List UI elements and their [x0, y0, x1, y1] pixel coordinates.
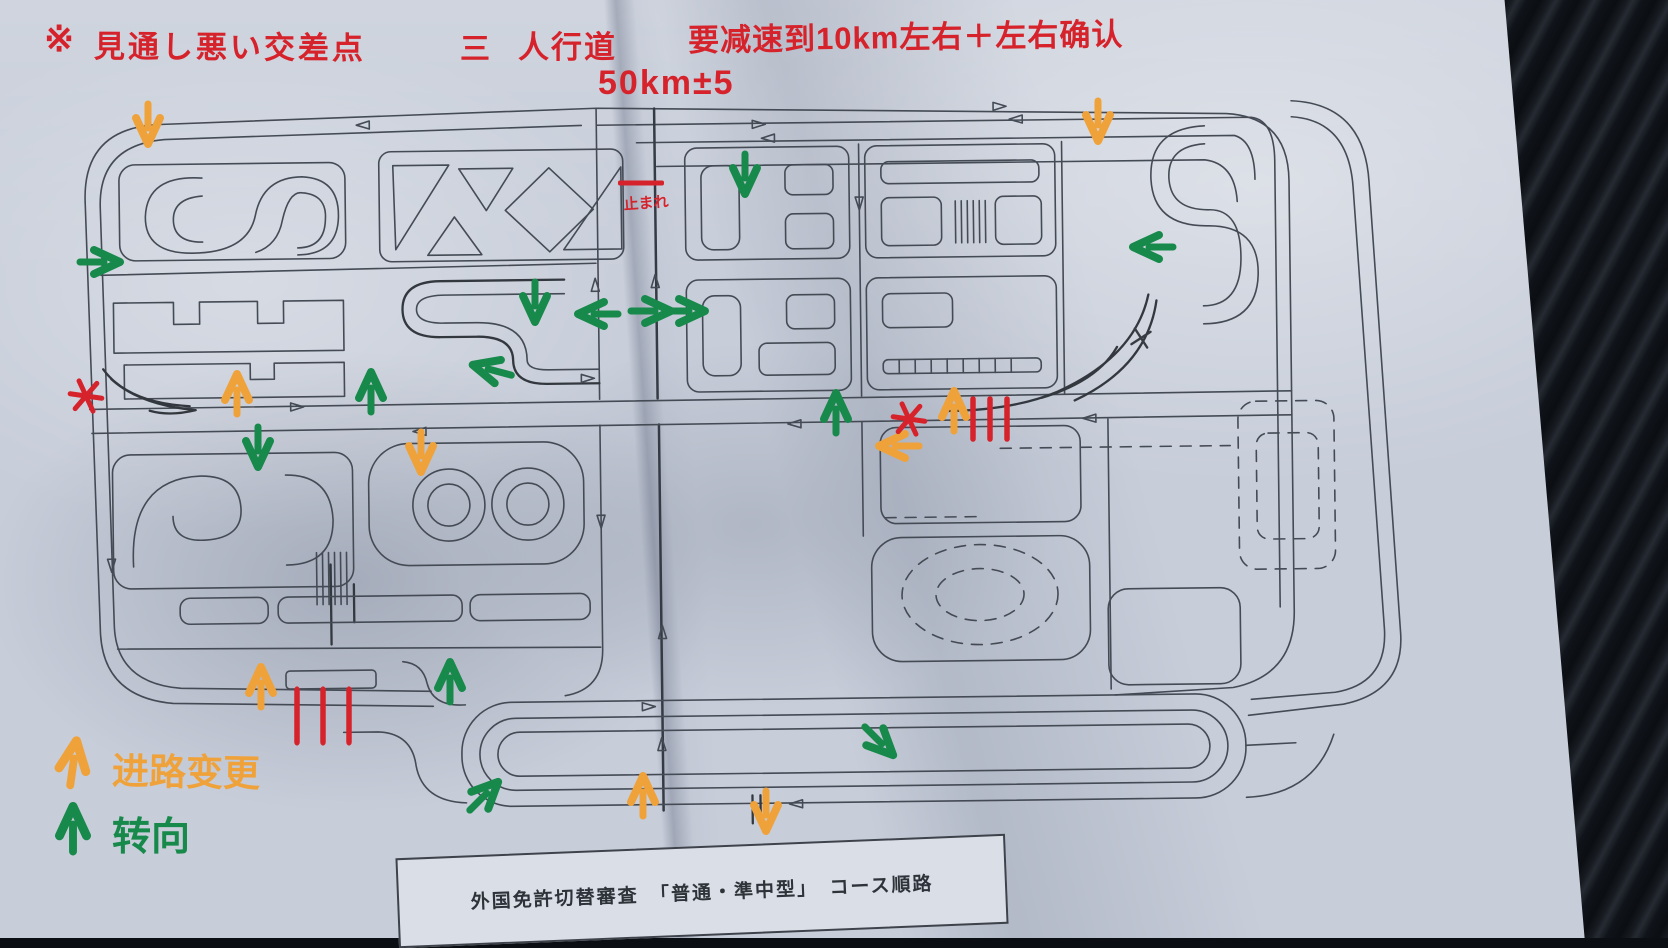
crosswalk-symbol: 三 [460, 24, 490, 68]
turn-arrow [733, 154, 757, 194]
lane-change-arrow [249, 667, 273, 707]
lane-change-arrow [631, 776, 655, 816]
turn-legend-label: 转向 [112, 806, 190, 862]
lane-change-arrow [409, 432, 433, 472]
speed-rule-note: 要减速到10km左右＋左右确认 [688, 9, 1124, 60]
turn-arrow [1133, 235, 1173, 259]
lane-change-arrow [1086, 101, 1110, 141]
blind-intersection-note: 見通し悪い交差点 [94, 21, 366, 68]
lane-change-arrow [136, 104, 160, 144]
course-map-photo: ※ 見通し悪い交差点 三 人行道 要减速到10km左右＋左右确认 50km±5 … [0, 0, 1668, 938]
turn-legend-icon [50, 802, 96, 861]
blind-intersection-symbol: ※ [44, 18, 74, 60]
turn-arrow [824, 393, 848, 433]
turn-arrow [523, 282, 547, 322]
turn-arrow [470, 353, 515, 387]
turn-arrow [359, 372, 383, 412]
turn-arrow [665, 299, 705, 323]
lane-change-arrow [225, 374, 249, 414]
annotation-markers [0, 0, 1668, 938]
lane-change-arrow [879, 434, 919, 458]
turn-arrow [80, 250, 120, 274]
crosswalk-note: 人行道 [518, 22, 617, 67]
speed-limit-note: 50km±5 [598, 64, 735, 103]
lane-change-arrow [754, 791, 778, 831]
blind-intersection-mark [891, 403, 927, 435]
turn-arrow [461, 773, 506, 818]
pen-cross-mark [1132, 329, 1151, 348]
course-title: 外国免許切替審査 「普通・準中型」 コース順路 [470, 868, 934, 914]
turn-arrow [578, 302, 618, 326]
lane-change-legend-icon [46, 733, 100, 798]
blind-intersection-mark [68, 380, 104, 412]
lane-change-arrow [942, 391, 966, 431]
turn-arrow [438, 662, 462, 702]
lane-change-legend-label: 进路变更 [112, 741, 261, 798]
turn-arrow [856, 718, 901, 763]
turn-arrow [246, 427, 270, 467]
stop-line-mark [618, 181, 664, 186]
